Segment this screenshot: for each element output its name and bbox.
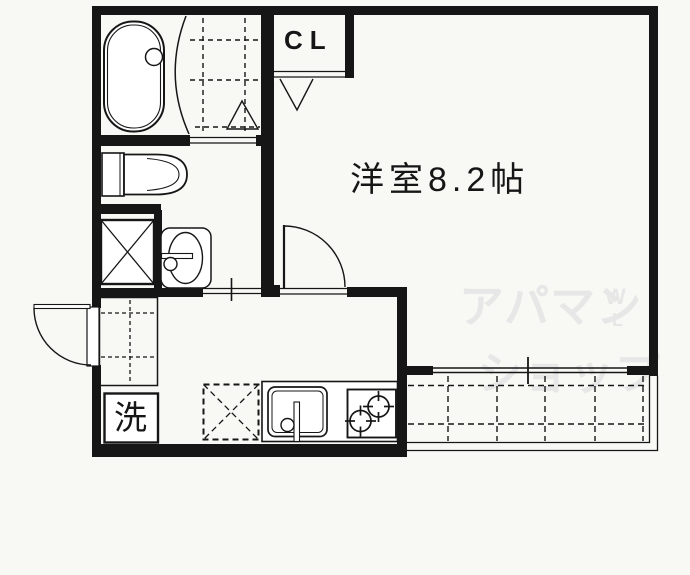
closet-door-mark (280, 79, 313, 110)
entrance-step (100, 298, 158, 386)
window-end-cap-right (627, 366, 649, 375)
room-label: 洋室8.2帖 (350, 163, 529, 197)
sink-faucet (294, 402, 300, 442)
pipe-shaft (101, 220, 154, 284)
kitchen-counter (262, 382, 398, 442)
window (433, 357, 627, 384)
entrance-door-arc (34, 308, 91, 365)
bathtub (104, 22, 164, 132)
wall-stub (261, 285, 280, 297)
wash-basin (161, 228, 211, 288)
sliding-door (203, 278, 261, 301)
wall-washroom-bottom (92, 288, 203, 297)
laundry-label: 洗 (114, 401, 147, 434)
wall-right (649, 6, 658, 376)
wall-bottom (92, 444, 407, 457)
wall-toilet-bottom (92, 204, 161, 214)
toilet (102, 153, 187, 196)
balcony (407, 376, 658, 451)
wall-top (92, 6, 658, 15)
entrance-door (34, 305, 99, 367)
wall-room-bottom (347, 287, 400, 297)
stove (345, 390, 396, 438)
wall-divider-vertical (261, 6, 274, 297)
entrance-door-jamb (87, 307, 99, 366)
refrigerator-space (204, 385, 259, 440)
wall-bath-bottom-corner (256, 135, 274, 146)
room-door (280, 225, 347, 294)
wall-closet-right (345, 6, 354, 78)
balcony-tile (408, 376, 648, 441)
bathroom-door-arc (175, 16, 189, 134)
kitchen-sink (268, 387, 327, 442)
room-door-arc (284, 226, 345, 287)
shower-room-tile (190, 18, 260, 133)
bathroom-door-mark (227, 101, 258, 129)
wall-left-upper (92, 6, 101, 308)
floor-plan-drawing (0, 0, 690, 575)
closet-door (274, 72, 345, 111)
entrance-door-leaf (34, 305, 90, 309)
closet-label: CL (284, 27, 333, 53)
floor-plan: アパマン ショップ W L (0, 0, 690, 575)
window-end-cap-left (407, 366, 433, 375)
wall-kitchen-right (397, 287, 407, 453)
wall-bath-bottom (92, 135, 190, 146)
